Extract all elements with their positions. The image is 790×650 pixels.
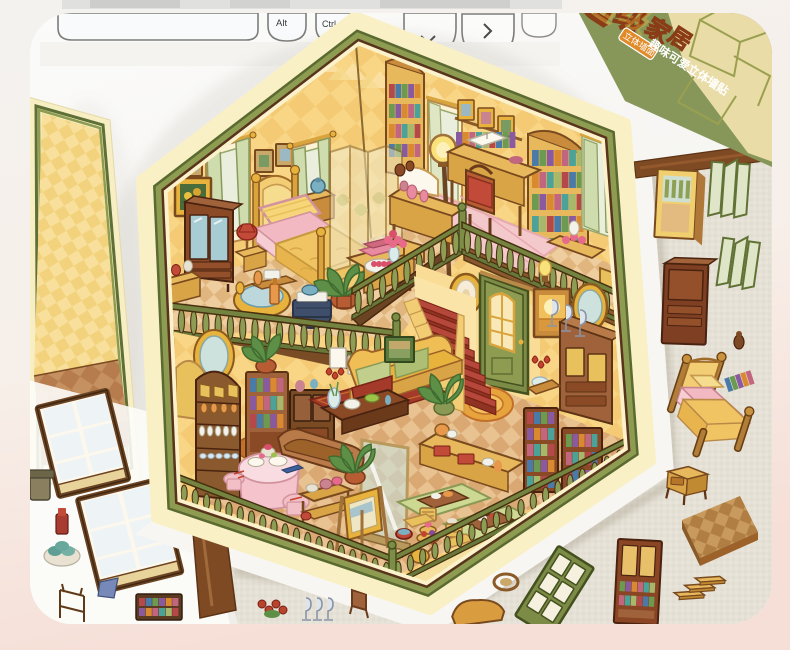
svg-text:Alt: Alt — [276, 18, 287, 29]
